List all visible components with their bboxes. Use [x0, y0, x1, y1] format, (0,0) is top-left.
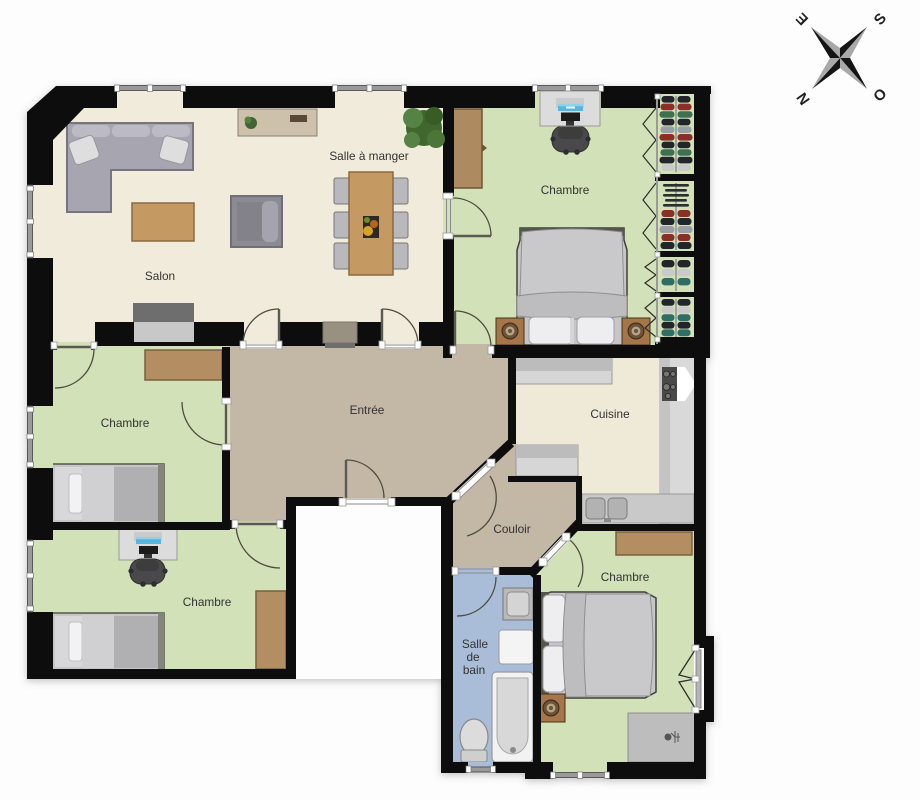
svg-text:Chambre: Chambre [101, 416, 150, 430]
svg-text:Cuisine: Cuisine [590, 407, 630, 421]
svg-text:Chambre: Chambre [601, 570, 650, 584]
svg-text:Couloir: Couloir [493, 522, 530, 536]
svg-text:Chambre: Chambre [183, 595, 232, 609]
svg-text:Salon: Salon [145, 269, 175, 283]
svg-text:Salle à manger: Salle à manger [329, 149, 408, 163]
svg-text:bain: bain [463, 663, 485, 677]
svg-text:de: de [466, 650, 480, 664]
svg-text:Entrée: Entrée [350, 403, 385, 417]
svg-text:Salle: Salle [462, 637, 489, 651]
svg-text:Chambre: Chambre [541, 183, 590, 197]
